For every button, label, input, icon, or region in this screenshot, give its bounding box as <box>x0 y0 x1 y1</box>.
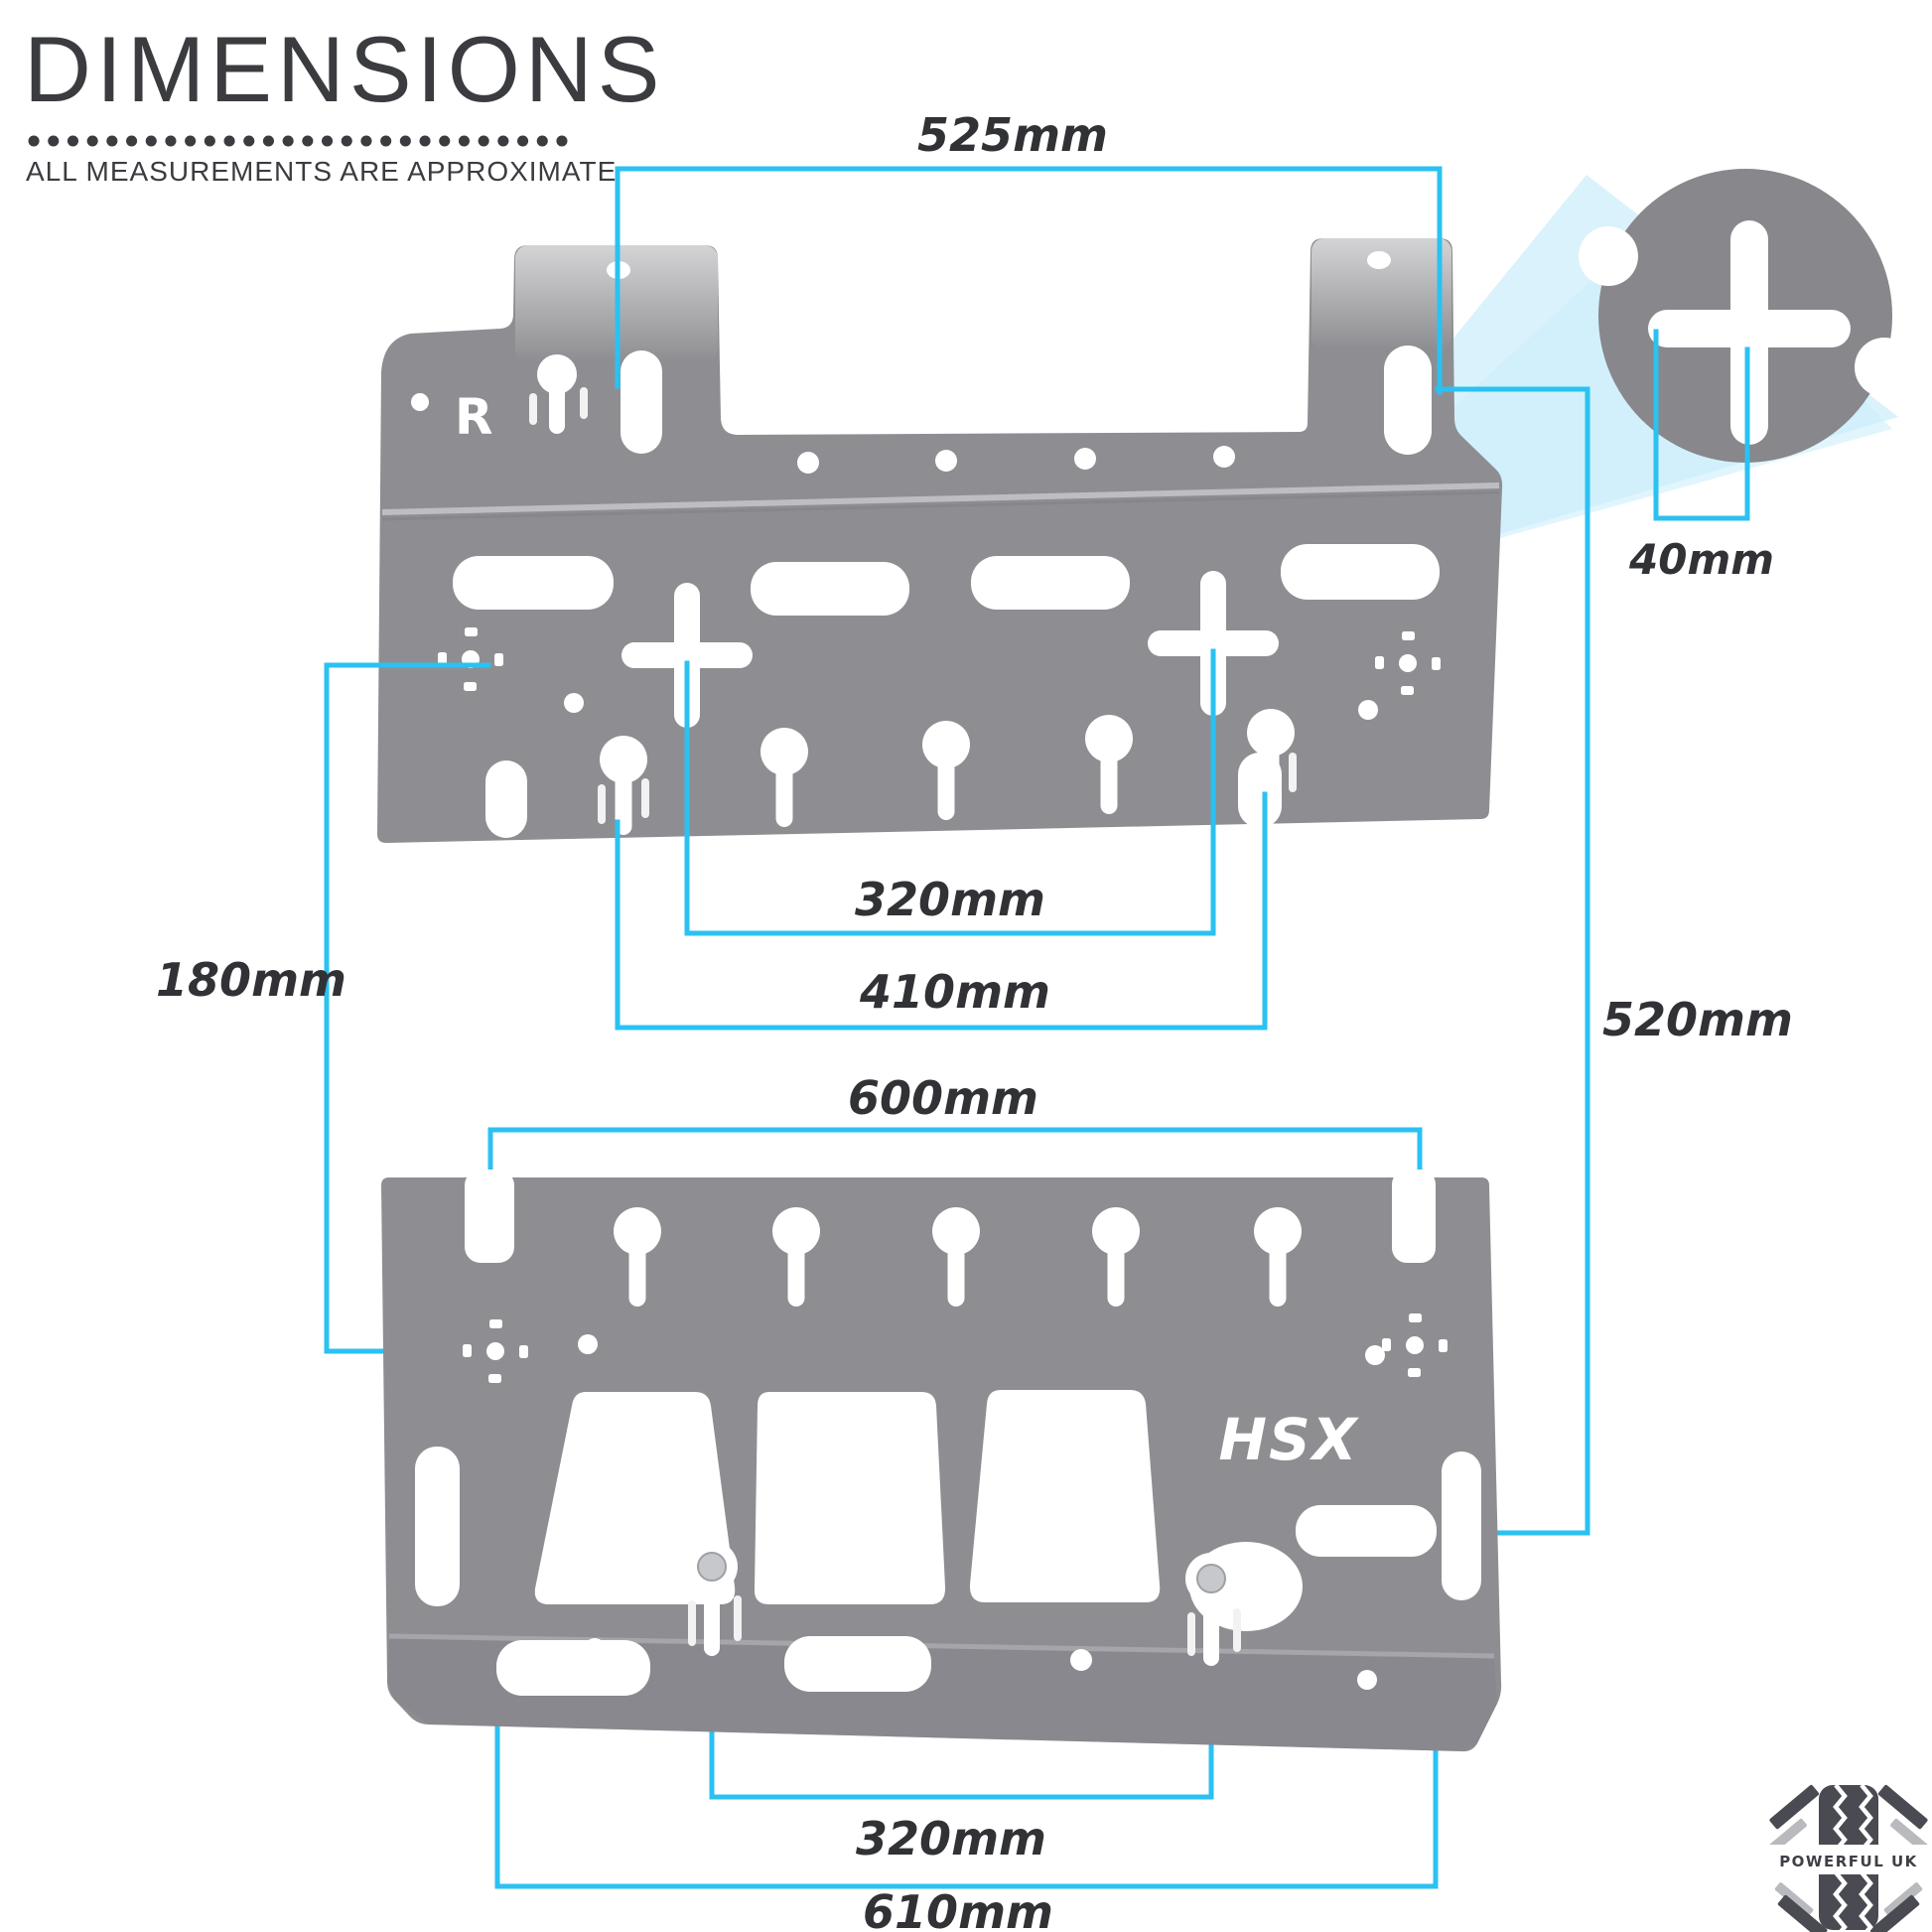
hole <box>1074 448 1096 470</box>
dimensions-diagram-page: DIMENSIONS ALL MEASUREMENTS ARE APPROXIM… <box>0 0 1932 1932</box>
detail-notch <box>1855 338 1914 397</box>
dimensions-diagram: DIMENSIONS ALL MEASUREMENTS ARE APPROXIM… <box>0 0 1932 1932</box>
slot <box>1281 544 1440 600</box>
hole <box>1213 446 1235 468</box>
top-plate-logo-r: R <box>455 388 493 446</box>
small-hole <box>1358 700 1378 720</box>
powerful-uk-logo: POWERFUL UK <box>1767 1784 1932 1932</box>
hole <box>935 450 957 472</box>
small-hole <box>584 1638 606 1660</box>
label-520mm: 520mm <box>1602 993 1793 1046</box>
label-600mm: 600mm <box>848 1071 1038 1125</box>
top-plate: R <box>377 238 1502 843</box>
slot <box>784 1636 931 1692</box>
page-subtitle: ALL MEASUREMENTS ARE APPROXIMATE <box>26 156 617 187</box>
slot <box>1296 1505 1437 1557</box>
small-hole <box>411 393 429 411</box>
slot <box>971 556 1130 610</box>
bottom-capsule-slot <box>1238 753 1282 828</box>
left-capsule-slot <box>621 350 662 454</box>
left-capsule-slot <box>415 1447 460 1606</box>
label-610mm: 610mm <box>863 1885 1053 1932</box>
bottom-capsule-slot <box>485 760 527 838</box>
bottom-plate-logo-hsx: HSX <box>1218 1406 1359 1473</box>
slot <box>751 562 909 616</box>
slot <box>496 1640 650 1696</box>
detail-notch <box>1579 226 1638 286</box>
page-title: DIMENSIONS <box>24 17 664 121</box>
right-capsule-slot <box>1384 345 1432 455</box>
slot <box>453 556 614 610</box>
top-notch <box>1392 1170 1436 1263</box>
small-hole <box>564 693 584 713</box>
trapezoid-cutout <box>755 1392 945 1604</box>
brand-name: POWERFUL UK <box>1779 1853 1918 1870</box>
small-hole <box>1357 1670 1377 1690</box>
bottom-plate: HSX <box>381 1170 1501 1751</box>
label-410mm: 410mm <box>859 965 1050 1019</box>
right-capsule-slot <box>1442 1451 1481 1600</box>
small-hole <box>1070 1649 1092 1671</box>
title-block: DIMENSIONS ALL MEASUREMENTS ARE APPROXIM… <box>24 17 664 187</box>
small-hole <box>1365 1345 1385 1365</box>
label-320mm-top: 320mm <box>855 873 1045 926</box>
label-320mm-bottom: 320mm <box>856 1812 1046 1865</box>
small-hole <box>578 1334 598 1354</box>
label-180mm: 180mm <box>156 953 346 1007</box>
right-tab-hole <box>1367 251 1391 269</box>
hole <box>797 452 819 474</box>
top-notch <box>465 1170 514 1263</box>
trapezoid-cutout <box>970 1390 1160 1602</box>
label-525mm: 525mm <box>917 108 1108 162</box>
label-40mm: 40mm <box>1628 535 1774 584</box>
